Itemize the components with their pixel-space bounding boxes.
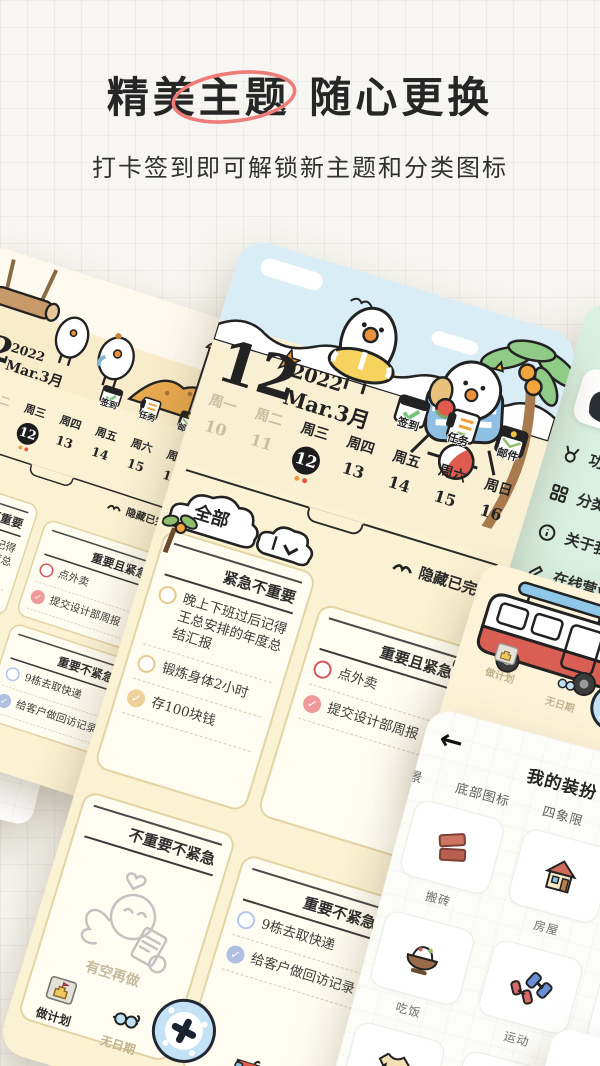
avatar[interactable] — [570, 366, 600, 436]
checkbox-checked[interactable] — [224, 943, 246, 965]
red-circle-annotation — [168, 66, 300, 128]
checkbox[interactable] — [156, 584, 178, 606]
cloud — [259, 256, 325, 292]
grid-icon — [548, 482, 570, 504]
medal-icon — [560, 442, 582, 464]
tab-plan[interactable]: 做计划 — [25, 970, 91, 1033]
checkbox-checked[interactable] — [29, 588, 47, 606]
bird-icon — [391, 558, 416, 577]
back-arrow-icon[interactable]: ← — [436, 722, 467, 760]
checkbox-checked[interactable] — [125, 687, 147, 709]
checkbox-checked[interactable] — [0, 692, 13, 710]
outfit-item-bricks[interactable]: 搬砖 — [392, 797, 507, 918]
promo-screenshot: 精美主题 随心更换 打卡签到即可解锁新主题和分类图标 — [0, 0, 600, 1066]
page-subtitle: 打卡签到即可解锁新主题和分类图标 — [0, 148, 600, 183]
outfit-tab-bottom-icons[interactable]: 底部图标 — [454, 777, 513, 810]
watermelon-bowl-icon — [230, 1051, 264, 1066]
tab-widget[interactable]: 小组件 — [211, 1048, 276, 1066]
checkbox[interactable] — [135, 652, 157, 674]
checkbox[interactable] — [4, 665, 22, 683]
plus-icon — [168, 1015, 200, 1047]
left-date-month: Mar.3月 — [3, 357, 65, 391]
outfit-title: 我的装扮 — [525, 762, 600, 805]
sandcastle-icon — [44, 974, 78, 1007]
checkbox[interactable] — [311, 658, 333, 680]
info-icon — [536, 521, 558, 543]
outfit-item-food[interactable]: 吃饭 — [362, 909, 477, 1030]
checkbox[interactable] — [38, 562, 56, 580]
outfit-tab-quadrant[interactable]: 四象限 — [540, 801, 586, 830]
checkbox-checked[interactable] — [301, 693, 323, 715]
outfit-item-clothes[interactable]: 服饰 — [332, 1020, 447, 1066]
diving-goggles-icon — [109, 1004, 143, 1035]
page-title: 精美主题 随心更换 — [0, 64, 600, 125]
tab-nodate[interactable]: 无日期 — [90, 1000, 155, 1061]
outfit-item-house[interactable]: 房屋 — [500, 826, 600, 947]
checkbox[interactable] — [235, 909, 257, 931]
bird-icon — [106, 500, 124, 514]
